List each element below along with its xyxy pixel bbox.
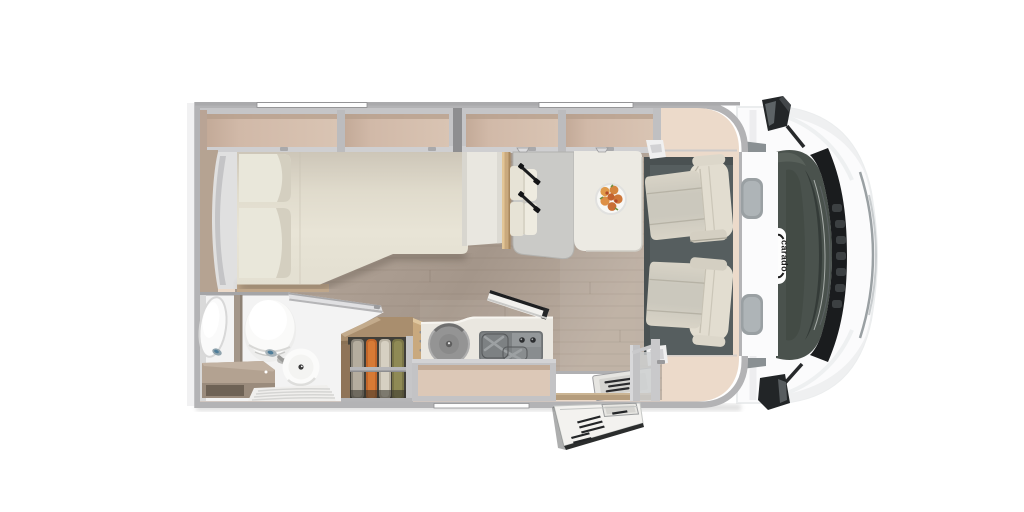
svg-text:carado: carado [780, 240, 790, 272]
